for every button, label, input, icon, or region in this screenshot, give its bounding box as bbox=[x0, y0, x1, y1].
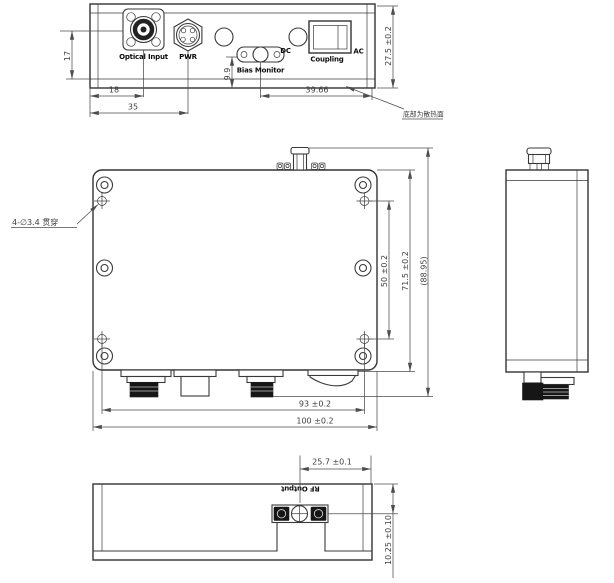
side-view bbox=[506, 148, 588, 400]
dim-18: 18 bbox=[109, 86, 119, 95]
coupling-switch bbox=[309, 21, 351, 53]
dim-25-7: 25.7 ±0.1 bbox=[312, 458, 352, 467]
heatsink-leader-line bbox=[346, 87, 404, 110]
dim-17: 17 bbox=[63, 51, 72, 61]
rf-output-connector-block bbox=[272, 505, 328, 523]
rf-connector-side bbox=[527, 148, 551, 170]
dim-9-9: 9.9 bbox=[223, 68, 232, 81]
dim-50: 50 ±0.2 bbox=[380, 255, 389, 287]
rf-output-connector-bottom bbox=[239, 370, 283, 397]
drawing-canvas: Optical Input PWR Bias Monitor DC Coupli… bbox=[0, 0, 614, 583]
dim-88-95: (88.95) bbox=[420, 256, 429, 285]
side-outline bbox=[506, 170, 588, 372]
dim-71-5: 71.5 ±0.2 bbox=[401, 251, 410, 291]
dim-35: 35 bbox=[128, 103, 138, 112]
dim-27-5: 27.5 ±0.2 bbox=[384, 26, 393, 66]
ac-label: AC bbox=[353, 48, 363, 56]
dim-39-66: 39.66 bbox=[306, 86, 329, 95]
bias-monitor-connector bbox=[237, 47, 284, 62]
optical-input-connector bbox=[123, 9, 164, 50]
coupling-label: Coupling bbox=[310, 56, 343, 64]
bottom-edge-connectors bbox=[121, 370, 358, 397]
mounting-hole-note: 4-∅3.4 贯穿 bbox=[12, 217, 58, 227]
enclosure-outline bbox=[93, 170, 377, 370]
bottom-view: RF Output 25.7 ±0.1 10.25 ±0.10 bbox=[93, 456, 398, 579]
dim-93: 93 ±0.2 bbox=[299, 400, 331, 409]
bottom-outline bbox=[93, 484, 372, 560]
pwr-label: PWR bbox=[179, 53, 197, 61]
fc-connector bbox=[121, 370, 171, 397]
switch-lever bbox=[308, 370, 358, 386]
side-bottom-connectors bbox=[523, 372, 575, 400]
mounting-hole-callout: 4-∅3.4 贯穿 bbox=[11, 205, 98, 228]
dc-label: DC bbox=[280, 47, 291, 55]
dim-100: 100 ±0.2 bbox=[296, 417, 333, 426]
bias-monitor-label: Bias Monitor bbox=[237, 67, 285, 75]
panel-hole-left bbox=[215, 28, 233, 46]
engineering-drawing: Optical Input PWR Bias Monitor DC Coupli… bbox=[0, 0, 614, 583]
heatsink-note: 底部为散热面 bbox=[403, 110, 444, 119]
top-view: 4-∅3.4 贯穿 50 ±0.2 71.5 ±0.2 (88.95) 93 ±… bbox=[11, 148, 433, 432]
optical-input-label: Optical Input bbox=[119, 53, 169, 61]
pwr-connector-bottom bbox=[174, 370, 216, 396]
panel-hole-right bbox=[289, 28, 307, 46]
front-panel-view: Optical Input PWR Bias Monitor DC Coupli… bbox=[60, 4, 444, 119]
rf-connector-top bbox=[277, 148, 325, 171]
dim-10-25: 10.25 ±0.10 bbox=[384, 515, 393, 565]
